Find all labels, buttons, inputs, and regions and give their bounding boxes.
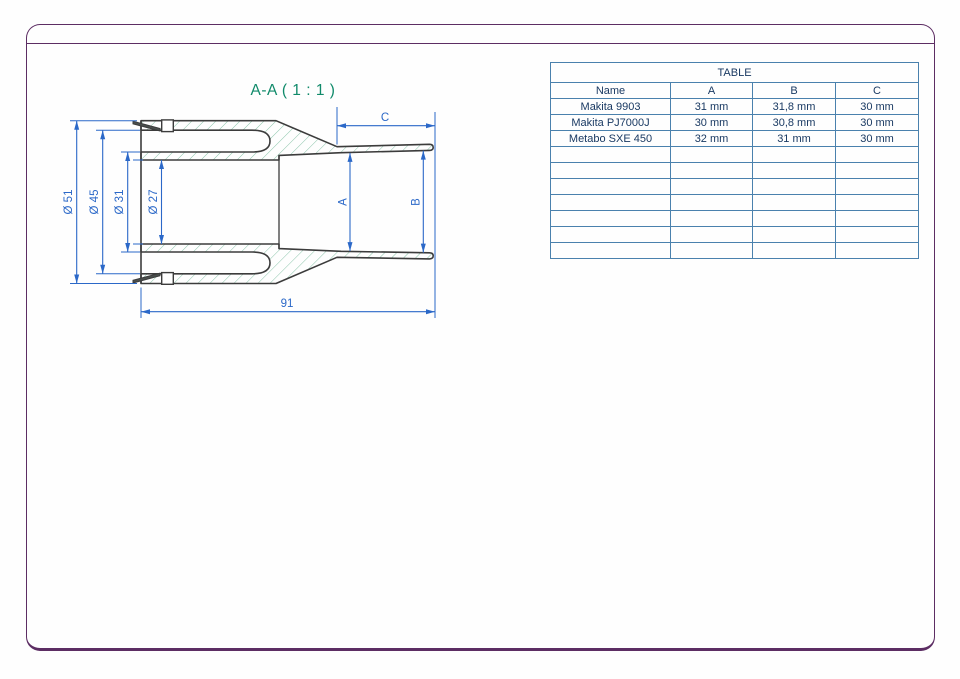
dim-bore-A: A: [338, 153, 353, 251]
empty-cell: [671, 211, 753, 227]
dim-length-C: C: [337, 112, 435, 128]
clip-ring-bottom: [162, 273, 174, 285]
table-empty-row: [551, 243, 919, 259]
dim-label-C: C: [381, 112, 389, 124]
cell-name: Makita PJ7000J: [551, 115, 671, 131]
table-header-row: Name A B C: [551, 83, 919, 99]
dim-diameter-31: Ø 31: [114, 152, 130, 252]
dim-label-27: Ø 27: [148, 190, 160, 215]
parts-table-body: TABLE Name A B C Makita 9903 31 mm 31,8 …: [551, 63, 919, 259]
empty-cell: [753, 227, 836, 243]
clip-ring-top: [162, 120, 174, 132]
dim-length-91: 91: [141, 298, 435, 314]
empty-cell: [753, 195, 836, 211]
col-header-name: Name: [551, 83, 671, 99]
table-empty-row: [551, 211, 919, 227]
table-row: Makita PJ7000J 30 mm 30,8 mm 30 mm: [551, 115, 919, 131]
cell-a: 32 mm: [671, 131, 753, 147]
empty-cell: [753, 147, 836, 163]
cell-c: 30 mm: [836, 99, 919, 115]
empty-cell: [836, 163, 919, 179]
table-empty-row: [551, 179, 919, 195]
cell-c: 30 mm: [836, 115, 919, 131]
table-empty-row: [551, 227, 919, 243]
dim-diameter-27: Ø 27: [148, 160, 164, 244]
empty-cell: [551, 227, 671, 243]
dim-diameter-45: Ø 45: [89, 130, 105, 274]
col-header-c: C: [836, 83, 919, 99]
section-geometry: [141, 121, 433, 284]
empty-cell: [836, 227, 919, 243]
empty-cell: [671, 227, 753, 243]
empty-cell: [836, 179, 919, 195]
dim-label-51: Ø 51: [63, 190, 75, 215]
dim-bore-B: B: [411, 151, 426, 253]
empty-cell: [836, 243, 919, 259]
empty-cell: [551, 179, 671, 195]
empty-cell: [671, 147, 753, 163]
cell-a: 30 mm: [671, 115, 753, 131]
empty-cell: [551, 147, 671, 163]
cell-c: 30 mm: [836, 131, 919, 147]
dim-diameter-51: Ø 51: [63, 121, 79, 284]
dim-label-91: 91: [281, 298, 294, 310]
table-title: TABLE: [551, 63, 919, 83]
empty-cell: [671, 243, 753, 259]
section-bottom-half: [141, 244, 433, 284]
empty-cell: [551, 211, 671, 227]
empty-cell: [753, 211, 836, 227]
section-top-half: [141, 121, 433, 160]
empty-cell: [551, 163, 671, 179]
table-row: Metabo SXE 450 32 mm 31 mm 30 mm: [551, 131, 919, 147]
empty-cell: [753, 243, 836, 259]
drawing-sheet: A-A ( 1 : 1 ): [0, 0, 960, 679]
cell-b: 31,8 mm: [753, 99, 836, 115]
empty-cell: [753, 179, 836, 195]
empty-cell: [551, 243, 671, 259]
empty-cell: [671, 163, 753, 179]
cell-name: Metabo SXE 450: [551, 131, 671, 147]
dimension-lines: Ø 51 Ø 45 Ø 31 Ø 27: [63, 107, 435, 318]
dim-label-31: Ø 31: [114, 190, 126, 215]
empty-cell: [671, 179, 753, 195]
table-title-row: TABLE: [551, 63, 919, 83]
table-empty-row: [551, 163, 919, 179]
table-row: Makita 9903 31 mm 31,8 mm 30 mm: [551, 99, 919, 115]
empty-cell: [753, 163, 836, 179]
cell-b: 31 mm: [753, 131, 836, 147]
parts-table: TABLE Name A B C Makita 9903 31 mm 31,8 …: [550, 62, 919, 259]
section-title: A-A ( 1 : 1 ): [251, 82, 336, 99]
empty-cell: [836, 211, 919, 227]
empty-cell: [671, 195, 753, 211]
cell-a: 31 mm: [671, 99, 753, 115]
col-header-b: B: [753, 83, 836, 99]
empty-cell: [551, 195, 671, 211]
dim-label-45: Ø 45: [89, 190, 101, 215]
col-header-a: A: [671, 83, 753, 99]
table-empty-row: [551, 147, 919, 163]
table-empty-row: [551, 195, 919, 211]
dim-label-A: A: [338, 198, 350, 206]
empty-cell: [836, 147, 919, 163]
dim-label-B: B: [411, 198, 423, 206]
empty-cell: [836, 195, 919, 211]
cell-b: 30,8 mm: [753, 115, 836, 131]
cell-name: Makita 9903: [551, 99, 671, 115]
